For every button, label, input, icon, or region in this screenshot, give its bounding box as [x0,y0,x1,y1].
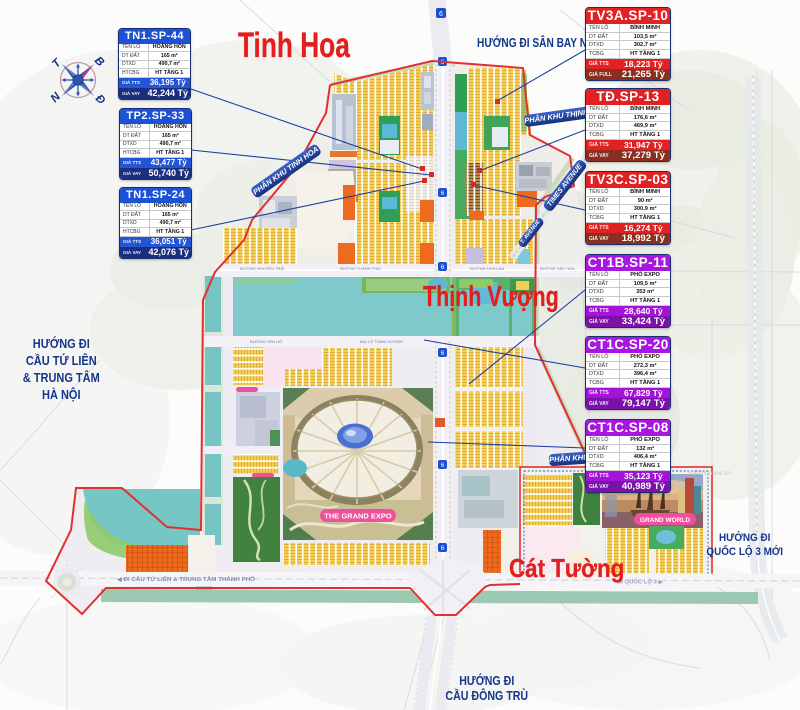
svg-text:ĐẠI LỘ THỊNH VƯỢNG: ĐẠI LỘ THỊNH VƯỢNG [360,339,403,344]
svg-text:ĐƯỜNG NGUYỄN TRÃI: ĐƯỜNG NGUYỄN TRÃI [240,266,284,271]
svg-text:6: 6 [441,462,445,469]
svg-text:6: 6 [439,11,443,18]
svg-text:6: 6 [441,190,445,197]
svg-text:6: 6 [441,545,445,552]
svg-text:GRAND WORLD: GRAND WORLD [640,517,690,524]
svg-text:THE GRAND EXPO: THE GRAND EXPO [324,512,392,521]
svg-text:ĐƯỜNG SẮC HOA: ĐƯỜNG SẮC HOA [540,266,575,271]
svg-text:6: 6 [441,264,445,271]
svg-text:Hanoionline.vn: Hanoionline.vn [688,470,731,477]
svg-text:◀ ĐI CẦU TỨ LIÊN & TRUNG TÂM T: ◀ ĐI CẦU TỨ LIÊN & TRUNG TÂM THÀNH PHỐ [116,575,256,583]
svg-text:6: 6 [441,350,445,357]
svg-text:ĐƯỜNG HOA LAN: ĐƯỜNG HOA LAN [470,266,504,271]
svg-text:ĐƯỜNG THÀNH THÁI: ĐƯỜNG THÀNH THÁI [340,266,381,271]
svg-text:ĐƯỜNG VEN HỒ: ĐƯỜNG VEN HỒ [250,339,282,344]
